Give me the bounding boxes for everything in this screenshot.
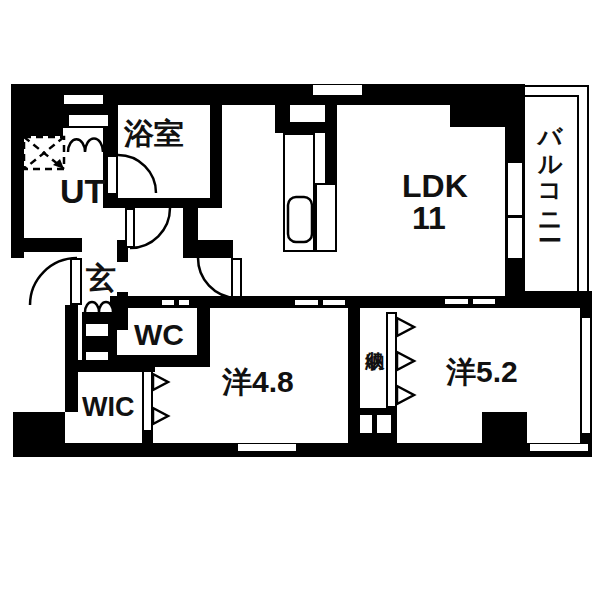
room-label-balcony: バルコニー <box>534 110 566 229</box>
folding-door-icon <box>68 139 103 153</box>
plan-symbols <box>0 0 600 600</box>
door-arc-bath <box>118 155 156 193</box>
room-label-storage: 収納 <box>362 336 388 338</box>
door-arc-ldk <box>198 258 236 298</box>
room-label-bath: 浴室 <box>124 114 184 155</box>
room-label-ldk-size: 11 <box>412 200 446 237</box>
folding-door-icon <box>85 302 113 312</box>
floor-plan: 浴室 UT 玄 WC WIC 洋4.8 収納 洋5.2 LDK 11 バルコニー <box>0 0 600 600</box>
room-label-wic: WIC <box>82 392 134 423</box>
sink-icon <box>288 197 312 242</box>
room-label-entrance: 玄 <box>86 258 116 299</box>
door-arc-washroom <box>130 208 170 248</box>
room-label-utility: UT <box>60 172 105 211</box>
wic-door-chevrons <box>153 374 168 424</box>
room-label-western-a: 洋4.8 <box>222 362 294 403</box>
room-label-toilet: WC <box>134 318 184 352</box>
room-label-western-b: 洋5.2 <box>446 352 518 393</box>
door-arc-entrance <box>30 258 77 305</box>
storage-door-chevrons <box>397 318 414 404</box>
